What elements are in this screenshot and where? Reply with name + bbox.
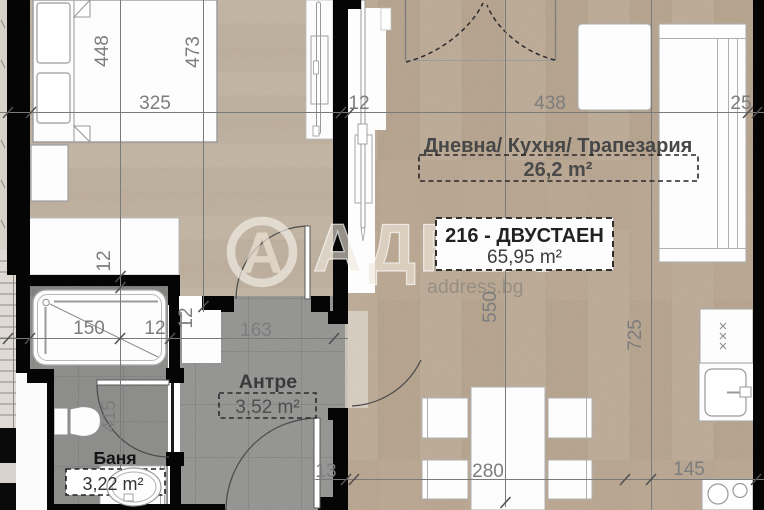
- svg-text:325: 325: [139, 93, 171, 114]
- svg-text:3,22 m²: 3,22 m²: [82, 474, 143, 494]
- svg-text:13: 13: [315, 461, 336, 482]
- svg-text:12: 12: [94, 250, 115, 271]
- svg-text:12: 12: [348, 93, 369, 114]
- svg-text:Дневна/ Кухня/ Трапезария: Дневна/ Кухня/ Трапезария: [424, 135, 693, 157]
- svg-text:65,95 m²: 65,95 m²: [487, 247, 562, 268]
- svg-text:12: 12: [176, 307, 197, 328]
- svg-text:163: 163: [240, 320, 272, 341]
- svg-text:280: 280: [472, 461, 504, 482]
- svg-text:Баня: Баня: [93, 448, 136, 468]
- svg-text:438: 438: [534, 93, 566, 114]
- svg-text:725: 725: [625, 319, 646, 351]
- svg-text:448: 448: [92, 35, 113, 67]
- svg-text:415: 415: [99, 400, 120, 432]
- svg-text:150: 150: [73, 318, 105, 339]
- svg-text:Антре: Антре: [239, 371, 297, 393]
- svg-text:12: 12: [144, 318, 165, 339]
- svg-text:473: 473: [183, 36, 204, 68]
- svg-text:25: 25: [730, 93, 751, 114]
- svg-text:address.bg: address.bg: [427, 276, 523, 298]
- svg-text:3,52 m²: 3,52 m²: [235, 397, 299, 418]
- svg-text:26,2 m²: 26,2 m²: [524, 159, 593, 181]
- svg-text:216 - ДВУСТАЕН: 216 - ДВУСТАЕН: [445, 225, 604, 247]
- svg-text:А: А: [241, 221, 283, 286]
- svg-text:145: 145: [673, 459, 705, 480]
- svg-text:550: 550: [480, 291, 501, 323]
